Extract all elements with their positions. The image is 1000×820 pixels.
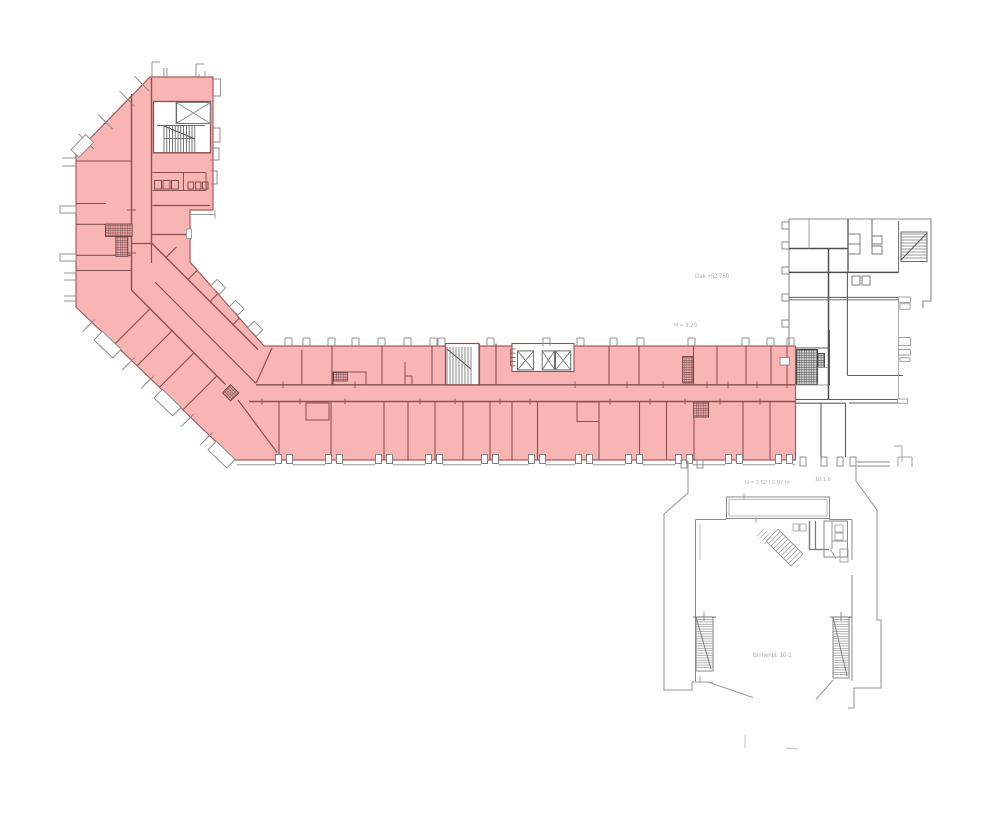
svg-text:Binnenpl. 10-1: Binnenpl. 10-1 (753, 653, 792, 659)
svg-text:H = 3.52 / 2.97 m: H = 3.52 / 2.97 m (745, 480, 790, 486)
svg-text:H = 3.20: H = 3.20 (674, 323, 698, 329)
svg-text:10.1 b: 10.1 b (815, 477, 831, 483)
svg-text:Dak +52.780: Dak +52.780 (695, 274, 730, 280)
